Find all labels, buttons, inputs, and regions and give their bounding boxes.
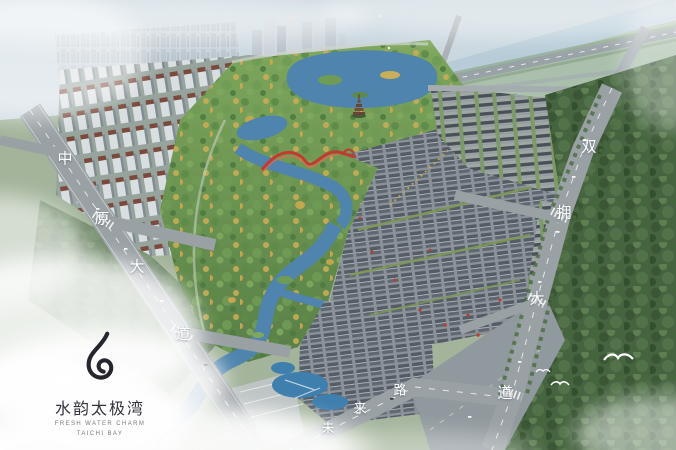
logo-subtitle-line1: FRESH WATER CHARM	[26, 420, 174, 429]
road-label-char: 原	[94, 208, 109, 229]
road-label-char: 路	[393, 380, 406, 399]
project-logo: 水韵太极湾 FRESH WATER CHARM TAICHI BAY	[26, 331, 174, 439]
road-label-char: 大	[529, 288, 544, 309]
road-label-char: 中	[57, 148, 72, 169]
road-label-char: 双	[581, 136, 596, 157]
logo-subtitle-line2: TAICHI BAY	[26, 430, 174, 439]
taiji-swirl-icon	[80, 331, 120, 387]
road-label-char: 未	[321, 418, 334, 437]
road-label-char: 拥	[556, 202, 571, 223]
road-label-char: 来	[353, 398, 366, 417]
aerial-masterplan-rendering: 中 原 大 道 未 来 路 双 拥 大 道 水韵太极湾 FRESH WATER …	[0, 0, 676, 450]
road-label-char: 大	[129, 256, 144, 277]
road-label-char: 道	[497, 382, 512, 403]
logo-title: 水韵太极湾	[26, 395, 174, 419]
road-label-char: 道	[175, 323, 190, 344]
